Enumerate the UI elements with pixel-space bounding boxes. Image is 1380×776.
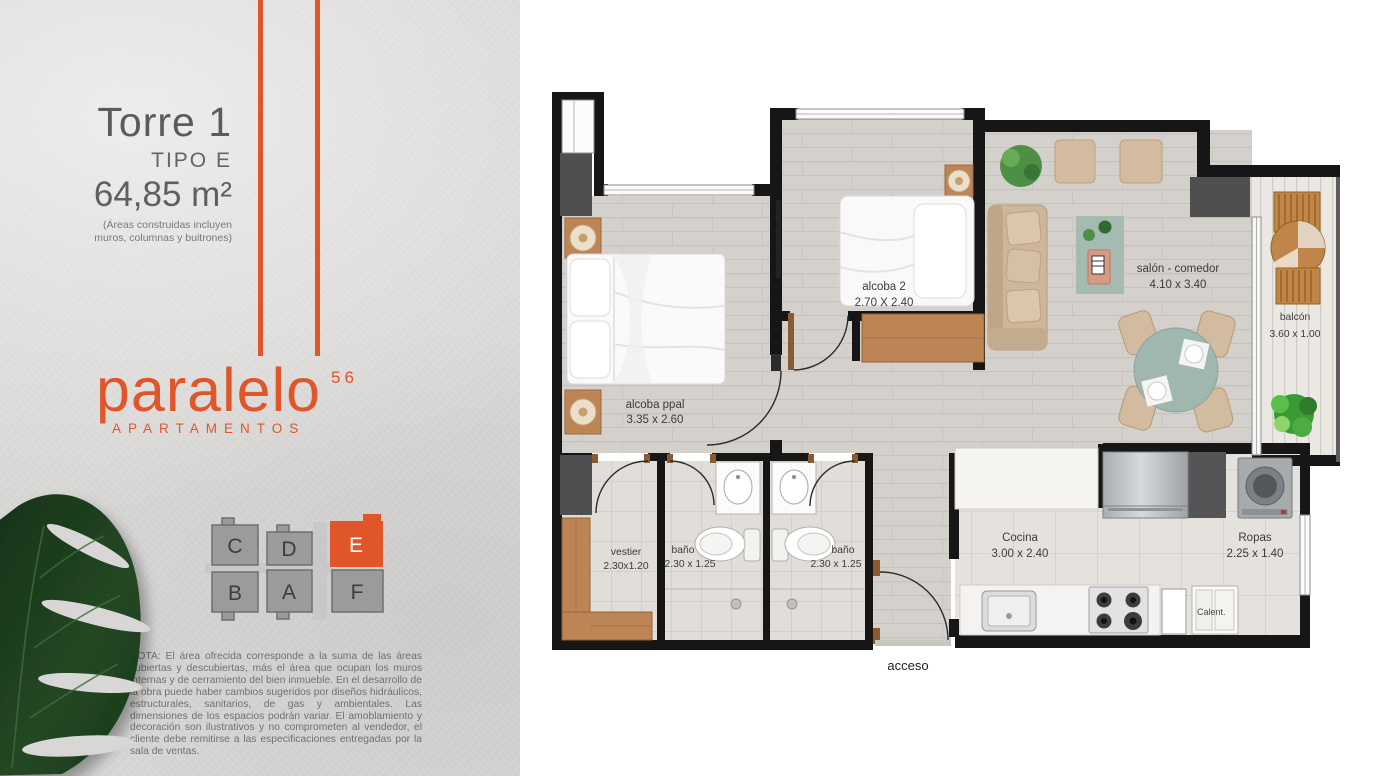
service-door xyxy=(1162,589,1186,634)
brand-vertical-line-1 xyxy=(258,0,263,356)
label-bano-1: baño xyxy=(672,545,695,556)
lamp-center xyxy=(579,234,588,243)
wall-bano1-bano2 xyxy=(763,461,770,640)
floor-cushion xyxy=(1120,140,1162,183)
fridge-handle xyxy=(1108,508,1183,511)
lamp-center xyxy=(955,177,963,185)
floor-acceso-corridor xyxy=(873,453,951,640)
floor-plan: Calent. xyxy=(552,92,1347,680)
dims-balcon: 3.60 x 1.00 xyxy=(1270,329,1321,340)
title-block: Torre 1 TIPO E 64,85 m² (Áreas construid… xyxy=(40,100,232,244)
door-post xyxy=(710,454,716,463)
small-plant xyxy=(1099,221,1112,234)
brand-logo: paralelo56 xyxy=(96,348,358,420)
sofa-pillow xyxy=(1006,289,1041,323)
washing-machine xyxy=(1238,458,1292,518)
label-bano-2: baño xyxy=(832,545,855,556)
unit-type: TIPO E xyxy=(40,149,232,173)
building-key-map: C D E B A F xyxy=(200,512,425,647)
wall-bottom-cocina xyxy=(955,635,1310,648)
wall xyxy=(648,453,670,461)
plate xyxy=(1185,345,1203,363)
tv-panel xyxy=(776,200,781,278)
label-balcon: balcón xyxy=(1280,312,1311,323)
plant-leaf xyxy=(1002,149,1020,167)
washer-button xyxy=(1281,510,1286,514)
door-post xyxy=(808,454,814,463)
leaf-decoration xyxy=(0,468,175,776)
toilet xyxy=(772,527,835,561)
heater-label: Calent. xyxy=(1197,607,1226,617)
door-leaf-master xyxy=(771,354,781,371)
key-letter-e: E xyxy=(349,534,363,557)
dims-cocina: 3.00 x 2.40 xyxy=(992,548,1049,560)
label-alcoba-ppal: alcoba ppal xyxy=(626,399,685,411)
small-plant xyxy=(1083,229,1095,241)
label-salon: salón - comedor xyxy=(1137,263,1220,275)
wall xyxy=(594,92,604,192)
faucet xyxy=(736,475,740,479)
double-bed xyxy=(567,254,725,384)
duct-column-top-left xyxy=(560,153,592,216)
key-letter-a: A xyxy=(282,581,296,604)
key-letter-f: F xyxy=(351,581,364,604)
wall-vestier-bano1 xyxy=(657,461,665,640)
brand-number: 56 xyxy=(331,368,358,387)
dims-alcoba-ppal: 3.35 x 2.60 xyxy=(627,414,684,426)
lamp-center xyxy=(579,408,588,417)
window-ropas xyxy=(1300,515,1310,595)
wall xyxy=(1300,595,1310,641)
wall-balcon-top xyxy=(1197,165,1340,177)
sofa-pillow xyxy=(1006,249,1042,284)
balcony-railing xyxy=(1336,177,1340,462)
label-cocina: Cocina xyxy=(1002,532,1038,544)
duct-panel-cocina xyxy=(1188,452,1226,518)
glass-door-balcon xyxy=(1252,217,1261,455)
water-heater: Calent. xyxy=(1192,586,1238,634)
label-ropas: Ropas xyxy=(1238,532,1271,544)
door-post xyxy=(592,454,598,463)
key-letter-d: D xyxy=(281,538,296,561)
dims-bano-2: 2.30 x 1.25 xyxy=(811,559,862,570)
toilet xyxy=(695,527,760,561)
dims-salon: 4.10 x 3.40 xyxy=(1150,279,1207,291)
shower-drain xyxy=(731,599,741,609)
key-letter-c: C xyxy=(227,535,242,558)
unit-area: 64,85 m² xyxy=(40,175,232,215)
key-letter-b: B xyxy=(228,582,242,605)
dims-vestier: 2.30x1.20 xyxy=(603,561,649,572)
label-vestier: vestier xyxy=(611,547,642,558)
balcony-plant xyxy=(1271,394,1317,437)
window-shaft xyxy=(562,100,594,153)
sofa-seat xyxy=(988,328,1047,350)
wall xyxy=(1300,453,1310,515)
wall-stub xyxy=(852,313,860,361)
stove xyxy=(1089,587,1148,633)
single-bed xyxy=(840,196,974,306)
door-post-acceso xyxy=(873,560,880,576)
pillow xyxy=(570,321,610,378)
sofa xyxy=(988,205,1047,350)
label-alcoba-2: alcoba 2 xyxy=(862,281,905,293)
wall xyxy=(770,311,790,321)
wall xyxy=(712,453,809,461)
wall xyxy=(949,619,959,637)
door-leaf-alcoba2 xyxy=(788,313,794,370)
entrance-threshold xyxy=(875,640,951,646)
brand-name: paralelo xyxy=(96,356,321,424)
duct-column-salon xyxy=(1190,177,1250,217)
shower-drain xyxy=(787,599,797,609)
window-alcoba-ppal xyxy=(604,185,754,195)
plate xyxy=(1148,382,1166,400)
sofa-pillow xyxy=(1005,210,1041,245)
pillow xyxy=(914,204,966,298)
faucet xyxy=(792,475,796,479)
wall-bano2-corridor xyxy=(865,453,873,640)
dims-alcoba-2: 2.70 X 2.40 xyxy=(855,297,914,309)
floor-cushion xyxy=(1055,140,1095,183)
kitchen-counter xyxy=(960,585,1160,635)
dims-bano-1: 2.30 x 1.25 xyxy=(665,559,716,570)
book xyxy=(1092,256,1104,274)
kitchen-sink xyxy=(982,591,1036,631)
left-info-panel: Torre 1 TIPO E 64,85 m² (Áreas construid… xyxy=(0,0,520,776)
wall xyxy=(770,108,798,120)
area-note-line1: (Áreas construidas incluyen xyxy=(40,219,232,232)
rug-coffee-table xyxy=(1076,216,1124,294)
duct-column-vestier xyxy=(560,455,592,515)
dims-ropas: 2.25 x 1.40 xyxy=(1227,548,1284,560)
sink-drain xyxy=(1006,613,1012,619)
tower-title: Torre 1 xyxy=(40,100,232,145)
wall-bottom-baths xyxy=(552,640,873,650)
refrigerator xyxy=(1103,452,1188,518)
brand-subtitle: APARTAMENTOS xyxy=(112,421,305,436)
plant-leaf xyxy=(1024,164,1040,180)
brand-vertical-line-2 xyxy=(315,0,320,356)
wall-salon-top xyxy=(985,120,1201,132)
area-note-line2: muros, columnas y buitrones) xyxy=(40,232,232,245)
balcony-chair xyxy=(1276,268,1320,304)
kitchen-island xyxy=(955,448,1098,509)
pillow xyxy=(570,259,610,316)
window-alcoba-2 xyxy=(796,109,964,119)
label-acceso: acceso xyxy=(887,658,928,673)
